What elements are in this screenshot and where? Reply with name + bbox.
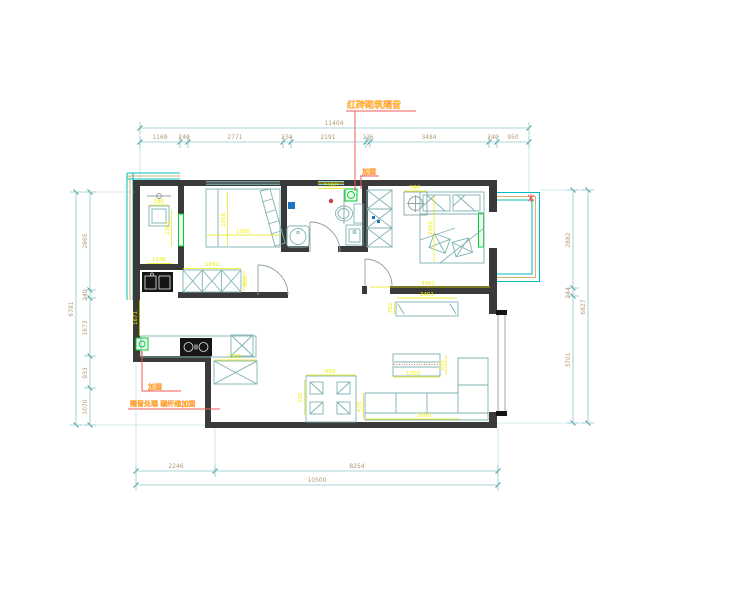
dim-top-total: 11404 <box>324 120 343 127</box>
bedroom1 <box>183 189 285 292</box>
dim-bath-top: 1160 <box>324 183 338 189</box>
plant-icon <box>528 194 534 202</box>
dim-bottom-1: 2246 <box>168 463 183 470</box>
dim-dining-h: 720 <box>298 392 304 403</box>
dim-right-3: 3701 <box>565 352 572 367</box>
chair <box>337 382 350 394</box>
floor-plan-canvas: 1140411692402771234219112534842409502246… <box>0 0 740 592</box>
doors <box>258 222 392 295</box>
dim-dining-w: 800 <box>325 369 336 375</box>
tall-wardrobe <box>367 190 392 247</box>
dim-bed1-v: 1506 <box>221 213 227 227</box>
counter-cabinet <box>231 335 253 356</box>
dim-room1-v: 1362 <box>165 221 171 235</box>
dim-ctable-h: 691 <box>440 360 446 371</box>
dim-top-7: 3484 <box>421 134 436 141</box>
dim-room1-box: 580 <box>154 199 165 205</box>
dim-right-1: 2882 <box>565 232 572 247</box>
fridge <box>214 361 257 384</box>
chair <box>310 402 323 414</box>
dim-bed2-ac: 590 <box>410 185 421 191</box>
dim-tv: 2401 <box>420 292 434 298</box>
dim-right-2: 244 <box>565 287 572 299</box>
dim-top-1: 1169 <box>152 134 167 141</box>
chair <box>337 402 350 414</box>
dim-tv-d: 352 <box>388 303 394 314</box>
wardrobe-row <box>183 270 241 292</box>
bedroom2 <box>367 190 490 287</box>
bathroom <box>287 189 363 248</box>
bay-window <box>496 310 507 416</box>
dim-sofa-d: 470 <box>357 401 363 412</box>
dimension-chains <box>70 122 594 491</box>
dim-ctable-w: 1350 <box>406 371 420 377</box>
dim-fridge: 1100 <box>227 354 241 360</box>
dim-left-total: 6781 <box>68 301 75 316</box>
vanity-sink <box>346 225 363 245</box>
dim-kitchen-v: 1671 <box>133 311 139 325</box>
dim-bed2-v: 2050 <box>428 221 434 235</box>
gas-stove <box>180 338 212 356</box>
callout-jiagu-top: 加固 <box>362 167 376 176</box>
dim-room1-b: 1146 <box>152 257 166 263</box>
dim-left-1: 2865 <box>82 233 89 248</box>
callout-brick: 红砖砌筑隔音 <box>347 99 401 111</box>
dim-top-2: 240 <box>178 134 190 141</box>
dim-sofa-w: 2600 <box>417 413 431 419</box>
dim-top-5: 2191 <box>320 134 335 141</box>
floor-plan-svg: 1140411692402771234219112534842409502246… <box>0 0 740 592</box>
chair <box>310 382 323 394</box>
dim-bed1-h: 2006 <box>236 229 250 235</box>
kitchen-sink <box>142 272 173 292</box>
sliding-door-green-bedroom1 <box>179 214 184 246</box>
dim-ward1-d: 600 <box>243 275 249 286</box>
dim-left-2: 240 <box>82 289 89 301</box>
dim-top-9: 950 <box>507 134 519 141</box>
dim-top-3: 2771 <box>227 134 242 141</box>
tv-cabinet <box>396 302 458 316</box>
kitchen <box>136 272 257 384</box>
dim-ward1: 1452 <box>205 262 219 268</box>
balcony-window-frame <box>497 193 540 282</box>
shower-icon <box>288 202 295 209</box>
reinforce-green-square <box>136 338 148 350</box>
dim-top-6: 125 <box>362 134 374 141</box>
dim-left-5: 1070 <box>82 399 89 414</box>
living-room <box>364 298 489 420</box>
dim-bottom-2: 8254 <box>349 463 364 470</box>
dim-top-8: 240 <box>487 134 499 141</box>
single-bed <box>206 189 280 247</box>
red-marker-dot <box>329 199 333 203</box>
dim-bed2-b: 3401 <box>421 281 435 287</box>
dim-right-total: 6827 <box>580 299 587 314</box>
dim-left-3: 1673 <box>82 320 89 335</box>
dining-set <box>305 375 357 422</box>
toilet <box>336 204 364 223</box>
dim-left-4: 933 <box>82 367 89 379</box>
dim-bottom-total: 10500 <box>307 477 326 484</box>
callout-jiagu-left: 加固 <box>148 382 162 391</box>
callout-insulation: 隔音处理 碳纤维加固 <box>130 399 195 408</box>
walls <box>133 180 497 428</box>
dim-top-4: 234 <box>281 134 293 141</box>
